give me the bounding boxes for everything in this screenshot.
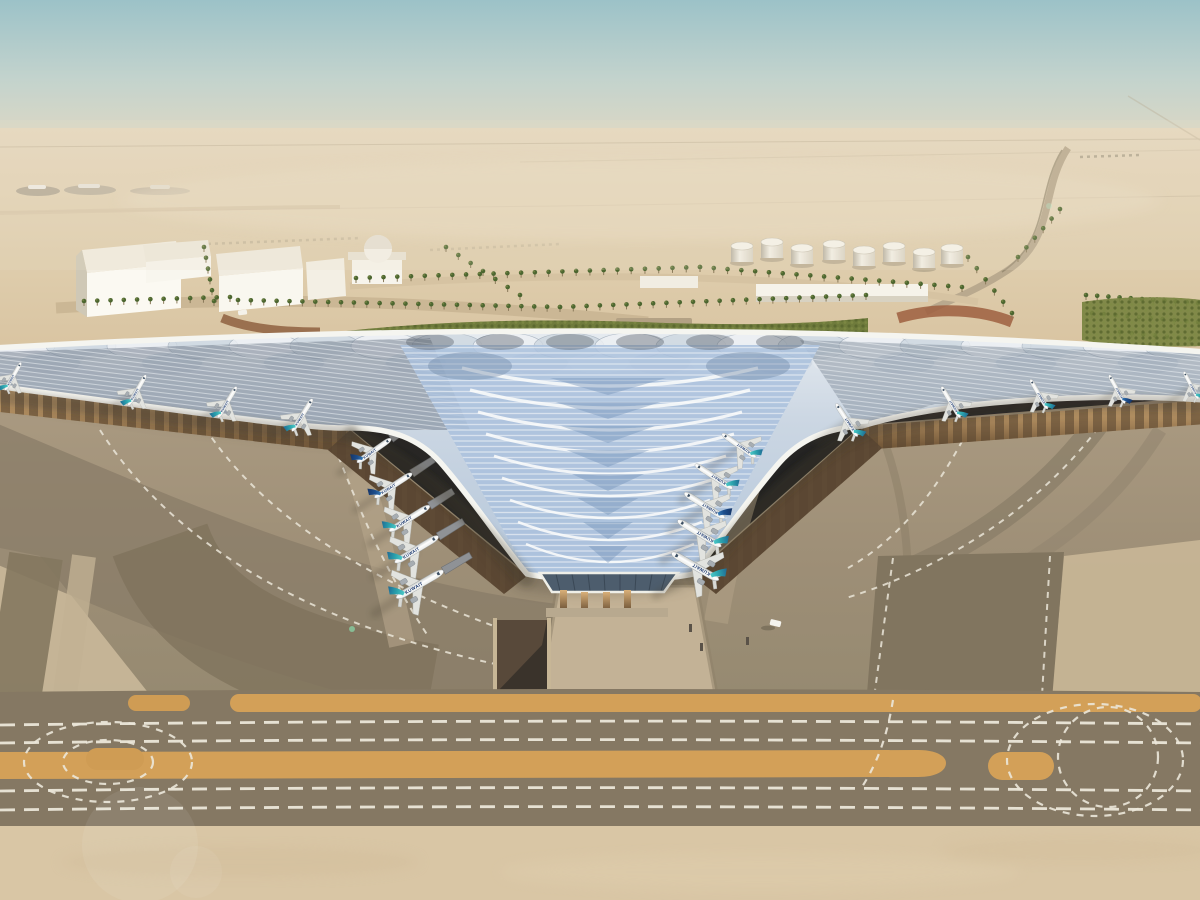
haze-overlay (0, 120, 1200, 270)
apron-light-right (1052, 540, 1200, 693)
scene-canvas: KUWAITKUWAITKUWAITKUWAITKUWAITKUWAITKUWA… (0, 0, 1200, 900)
taxiway-vertical-right (866, 552, 1064, 706)
airport-rendering: Aerial rendering of Kuwait International… (0, 0, 1200, 900)
